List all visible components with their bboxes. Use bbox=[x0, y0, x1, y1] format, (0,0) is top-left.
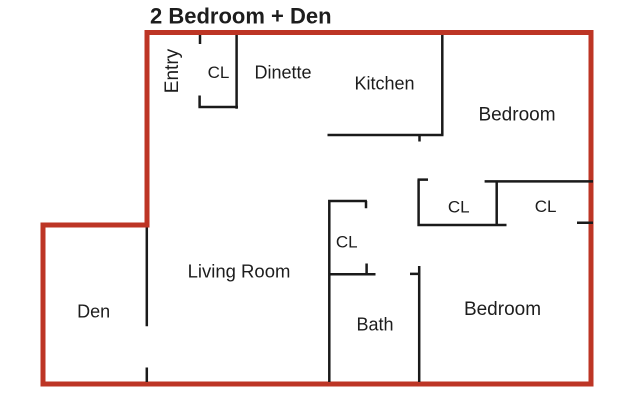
svg-text:CL: CL bbox=[448, 198, 470, 217]
svg-text:Dinette: Dinette bbox=[254, 63, 311, 83]
svg-text:CL: CL bbox=[208, 63, 230, 82]
svg-text:Bath: Bath bbox=[356, 315, 393, 335]
svg-text:2 Bedroom + Den: 2 Bedroom + Den bbox=[150, 4, 332, 29]
svg-text:Den: Den bbox=[77, 302, 110, 322]
svg-text:CL: CL bbox=[535, 197, 557, 216]
svg-text:Bedroom: Bedroom bbox=[464, 299, 541, 320]
svg-text:Bedroom: Bedroom bbox=[478, 105, 555, 126]
svg-text:CL: CL bbox=[336, 233, 358, 252]
svg-text:Living Room: Living Room bbox=[188, 261, 291, 282]
svg-text:Entry: Entry bbox=[162, 48, 183, 93]
svg-text:Kitchen: Kitchen bbox=[354, 74, 414, 94]
